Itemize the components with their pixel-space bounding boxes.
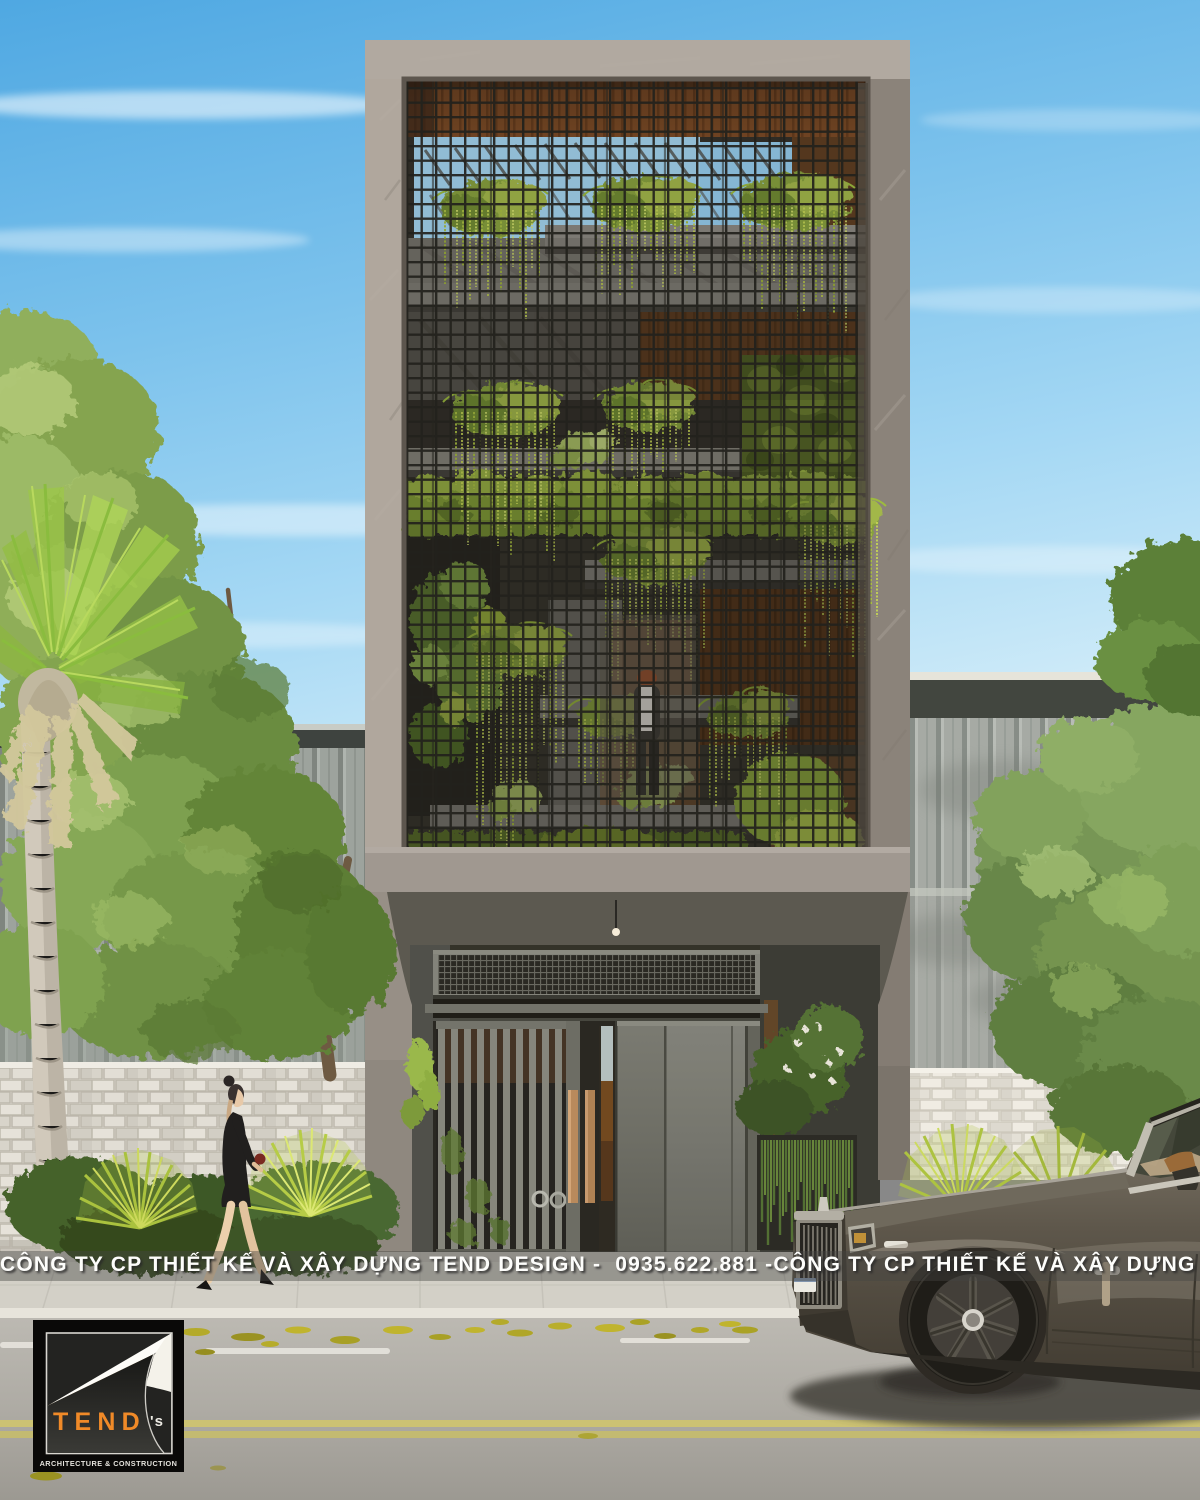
svg-text:TEND: TEND [53, 1408, 146, 1436]
svg-text:'s: 's [150, 1413, 164, 1430]
